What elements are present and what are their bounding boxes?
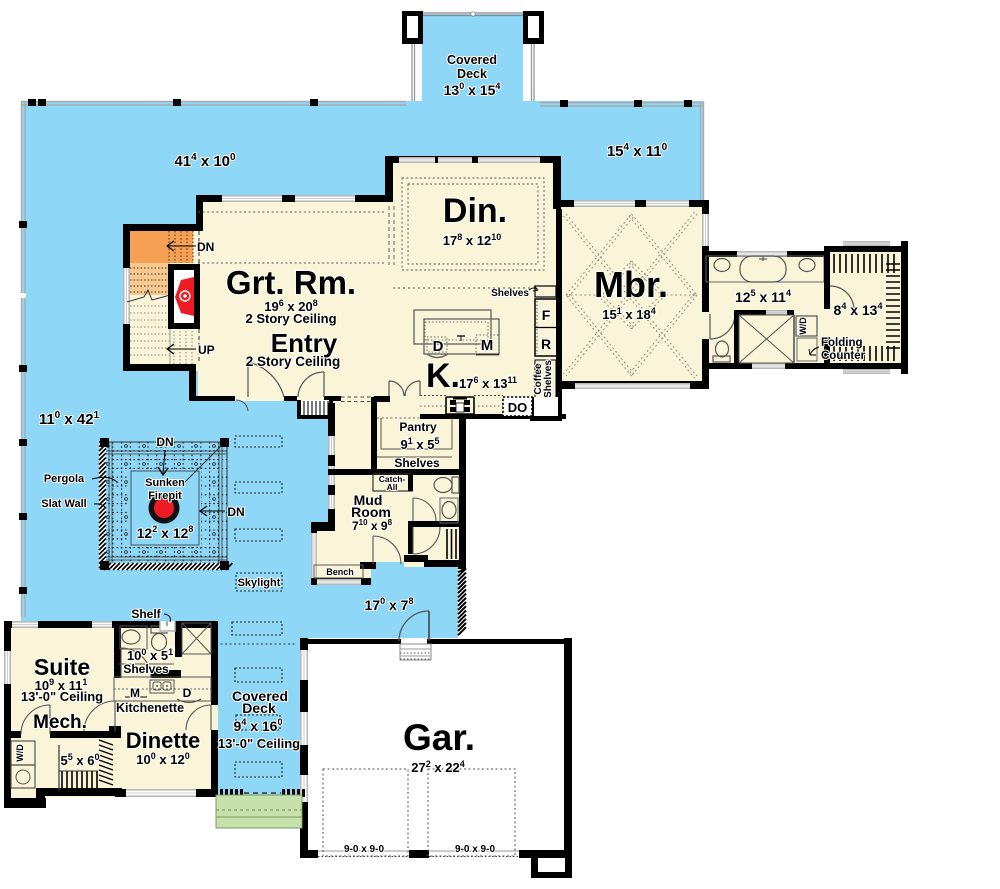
svg-text:F: F <box>542 307 551 323</box>
svg-text:170 x 78: 170 x 78 <box>365 596 414 613</box>
svg-text:84 x 134: 84 x 134 <box>834 301 883 318</box>
svg-text:Shelves: Shelves <box>543 360 554 398</box>
svg-text:DN: DN <box>156 435 173 449</box>
svg-text:Kitchenette: Kitchenette <box>116 701 184 715</box>
svg-text:Deck: Deck <box>242 700 276 716</box>
svg-text:414 x 100: 414 x 100 <box>174 152 236 170</box>
svg-text:All: All <box>387 482 398 492</box>
svg-text:M: M <box>130 686 140 700</box>
svg-text:110 x 421: 110 x 421 <box>39 410 100 428</box>
svg-text:Din.: Din. <box>443 192 507 230</box>
svg-text:Firepit: Firepit <box>148 490 182 502</box>
svg-text:9-0 x 9-0: 9-0 x 9-0 <box>344 844 384 855</box>
svg-text:UP: UP <box>198 343 215 357</box>
svg-text:D: D <box>183 686 192 700</box>
svg-text:D: D <box>433 338 444 355</box>
svg-text:M: M <box>481 337 494 354</box>
svg-text:Deck: Deck <box>457 67 487 81</box>
svg-text:Shelves: Shelves <box>123 662 169 676</box>
svg-text:Gar.: Gar. <box>403 717 475 758</box>
svg-text:91 x 55: 91 x 55 <box>401 436 440 452</box>
svg-text:R: R <box>541 336 551 352</box>
svg-text:Covered: Covered <box>447 53 497 67</box>
svg-text:Bench: Bench <box>326 567 354 577</box>
svg-text:154 x 110: 154 x 110 <box>607 142 668 160</box>
svg-text:Slat Wall: Slat Wall <box>41 498 86 510</box>
svg-text:K.: K. <box>426 357 460 395</box>
svg-text:DO: DO <box>508 400 528 415</box>
svg-text:Pantry: Pantry <box>399 420 437 434</box>
svg-text:Dinette: Dinette <box>126 728 201 753</box>
svg-text:Pergola: Pergola <box>44 473 85 485</box>
svg-text:W/D: W/D <box>798 317 808 335</box>
svg-text:13'-0" Ceiling: 13'-0" Ceiling <box>218 736 300 751</box>
svg-text:100 x 120: 100 x 120 <box>136 751 189 767</box>
svg-text:125 x 114: 125 x 114 <box>735 288 791 305</box>
svg-text:130 x 154: 130 x 154 <box>444 81 501 98</box>
svg-text:Folding: Folding <box>821 337 863 349</box>
svg-text:Sunken: Sunken <box>145 477 185 489</box>
svg-text:Mech.: Mech. <box>33 712 87 733</box>
svg-text:2 Story Ceiling: 2 Story Ceiling <box>245 311 336 326</box>
svg-text:Shelf: Shelf <box>131 607 161 621</box>
svg-text:13'-0" Ceiling: 13'-0" Ceiling <box>21 689 103 704</box>
svg-text:DN: DN <box>227 505 244 519</box>
svg-text:Shelves: Shelves <box>394 456 440 470</box>
svg-text:W/D: W/D <box>15 744 25 762</box>
svg-text:272 x 224: 272 x 224 <box>411 759 464 775</box>
svg-text:DN: DN <box>197 240 214 254</box>
svg-text:9-0 x 9-0: 9-0 x 9-0 <box>455 844 495 855</box>
svg-text:100 x 51: 100 x 51 <box>127 647 173 663</box>
svg-text:Shelves: Shelves <box>491 288 529 299</box>
svg-text:Grt. Rm.: Grt. Rm. <box>226 264 356 301</box>
svg-text:Counter: Counter <box>821 350 866 362</box>
svg-text:94 x 160: 94 x 160 <box>234 717 283 734</box>
svg-text:2 Story Ceiling: 2 Story Ceiling <box>246 354 341 369</box>
svg-text:151 x 184: 151 x 184 <box>602 306 655 322</box>
svg-text:Room: Room <box>351 504 391 520</box>
svg-text:122 x 128: 122 x 128 <box>137 524 194 541</box>
svg-text:55 x 60: 55 x 60 <box>61 752 100 768</box>
svg-text:Mbr.: Mbr. <box>594 264 668 305</box>
svg-text:710 x 98: 710 x 98 <box>352 518 393 533</box>
svg-text:Skylight: Skylight <box>238 577 281 589</box>
